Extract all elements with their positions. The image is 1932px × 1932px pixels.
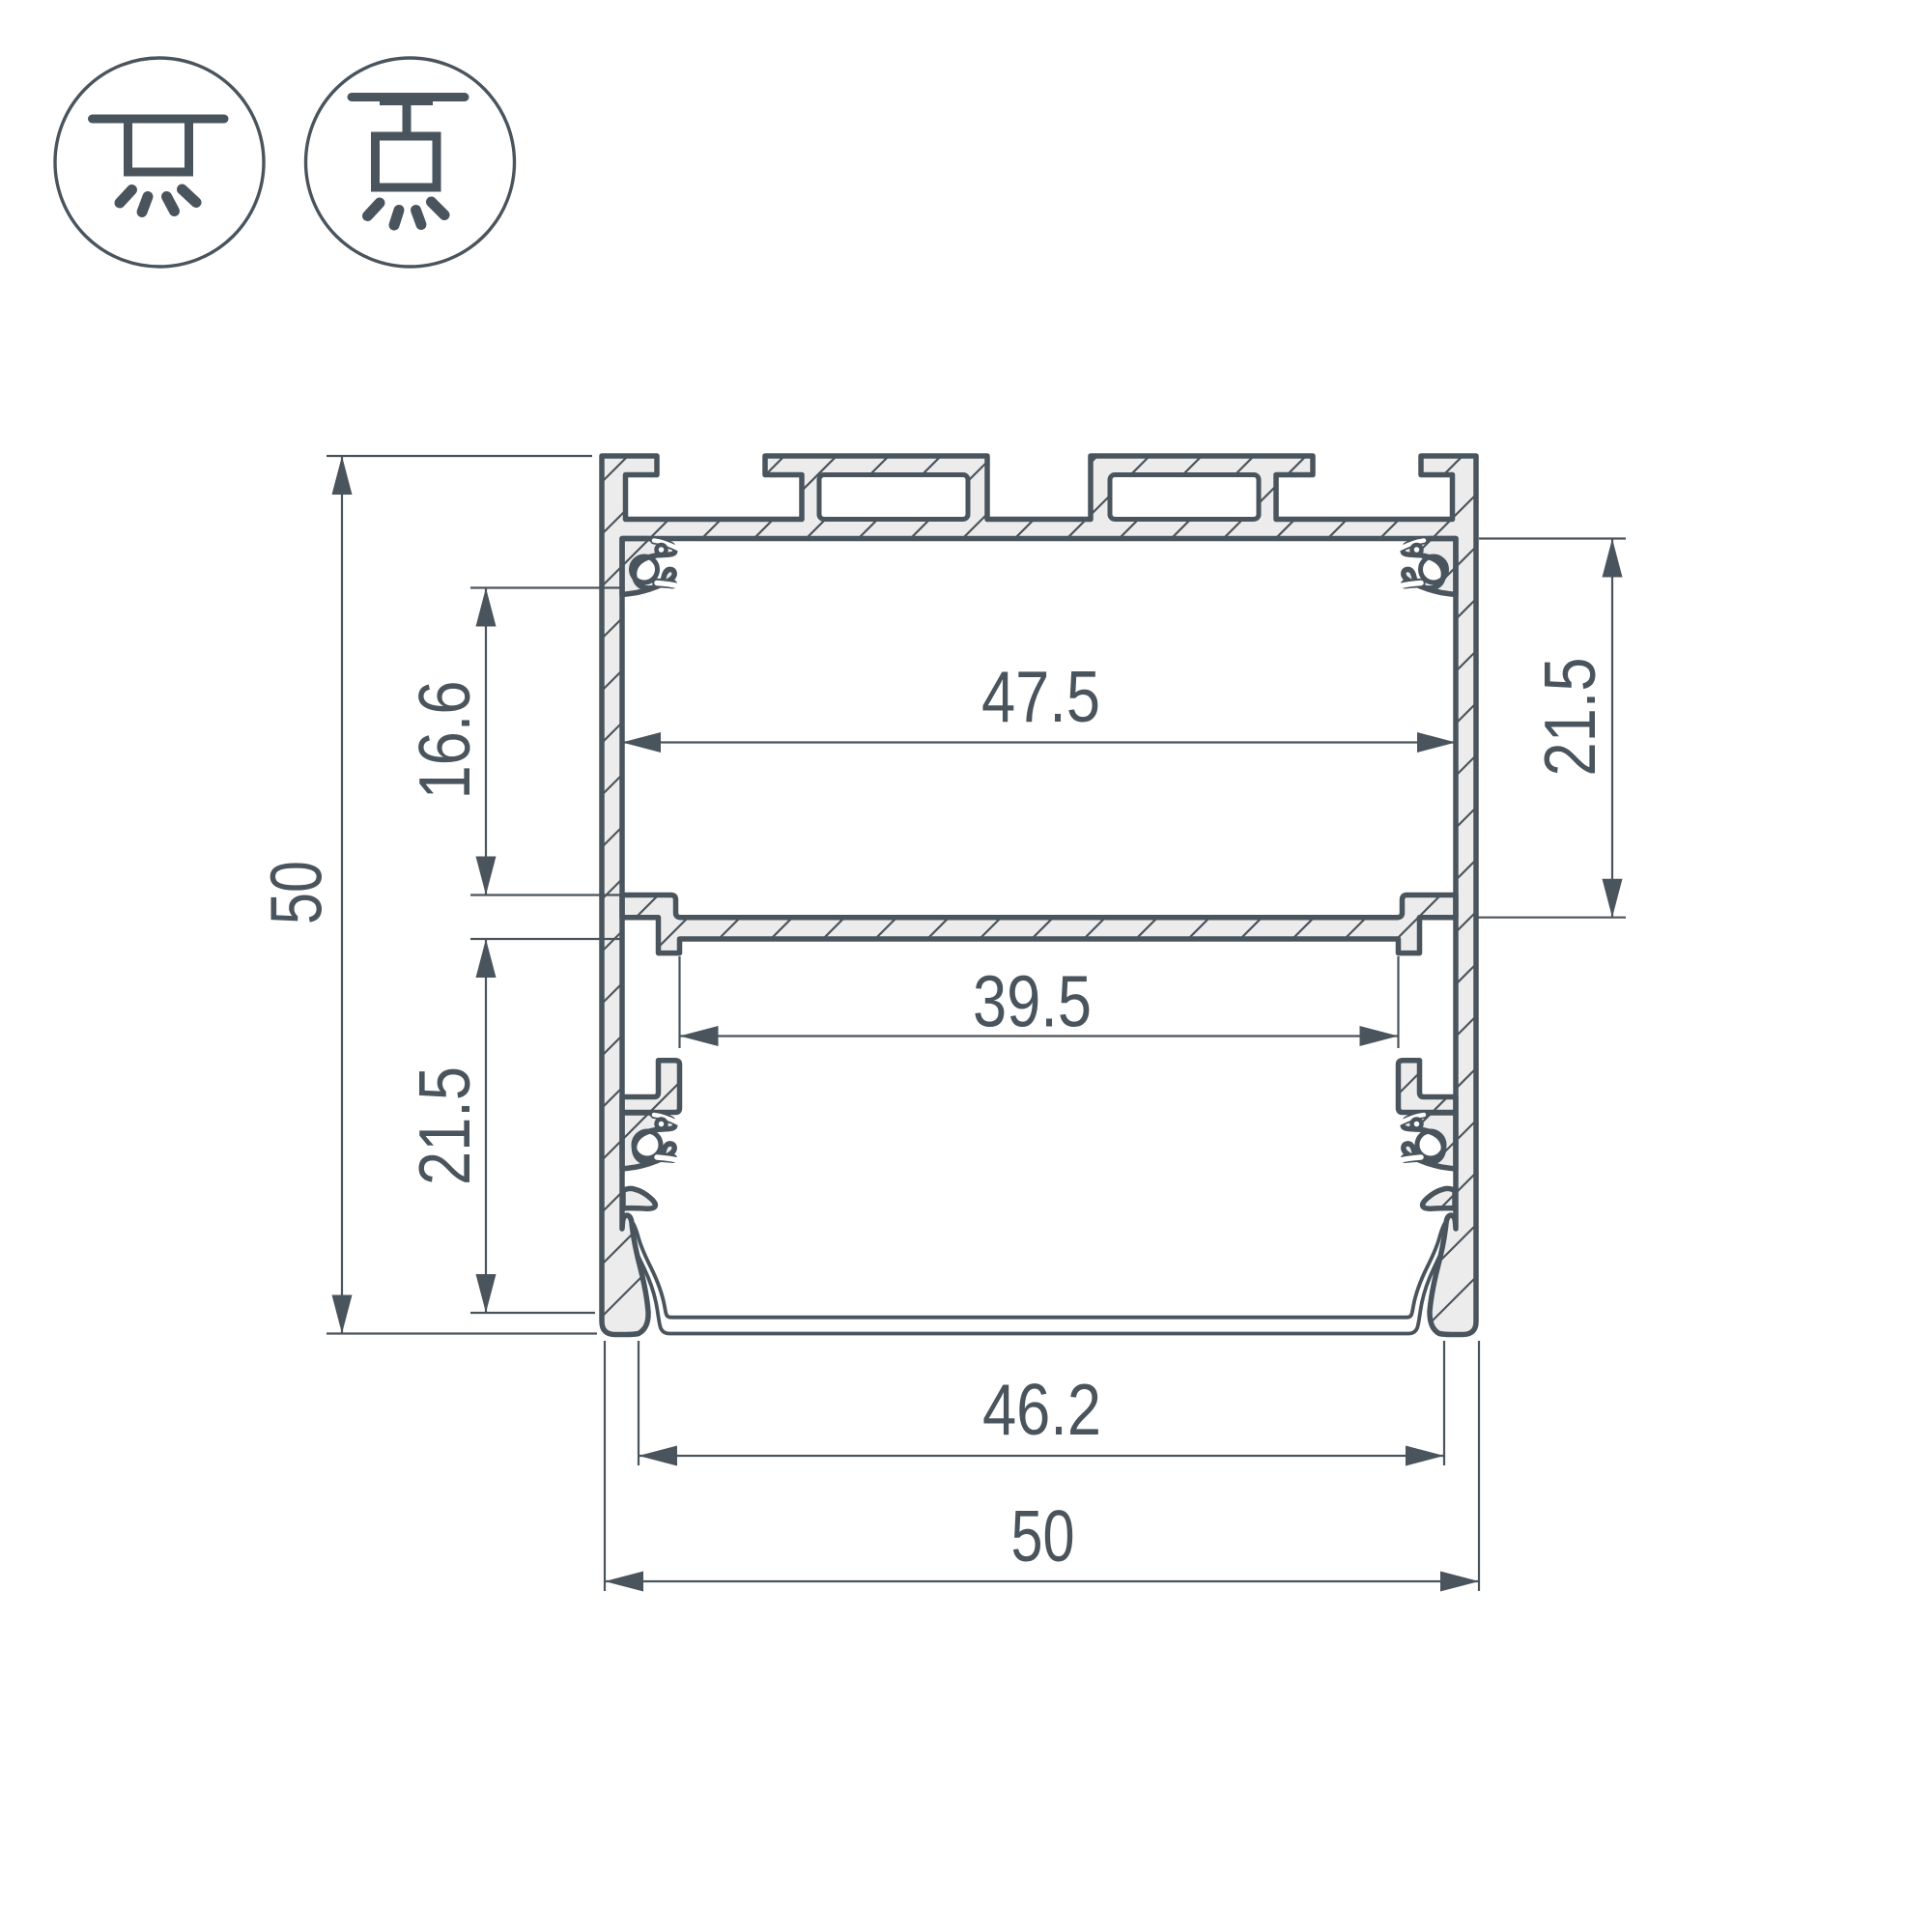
svg-text:50: 50 <box>256 861 337 924</box>
svg-text:39.5: 39.5 <box>973 961 1092 1042</box>
svg-text:16.6: 16.6 <box>404 681 485 800</box>
svg-text:47.5: 47.5 <box>981 656 1100 737</box>
svg-text:21.5: 21.5 <box>1529 658 1610 777</box>
svg-text:21.5: 21.5 <box>404 1066 485 1185</box>
svg-text:50: 50 <box>1011 1495 1075 1577</box>
svg-text:46.2: 46.2 <box>982 1369 1101 1450</box>
